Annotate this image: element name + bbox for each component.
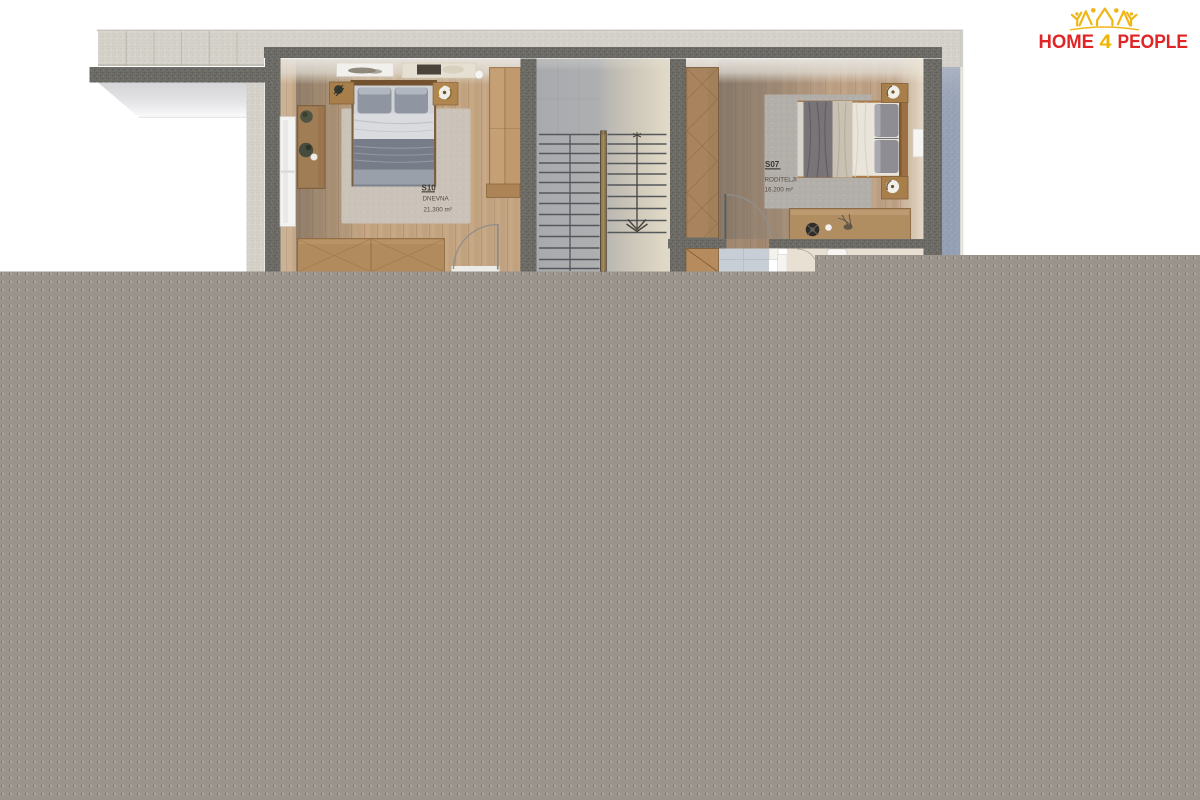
svg-text:16.200 m²: 16.200 m² xyxy=(765,187,793,194)
svg-text:S10: S10 xyxy=(422,184,437,193)
svg-text:S07: S07 xyxy=(765,160,780,169)
svg-text:PEOPLE: PEOPLE xyxy=(1118,31,1189,53)
svg-text:4: 4 xyxy=(1100,31,1112,53)
svg-text:HOME: HOME xyxy=(1039,31,1095,53)
svg-text:RODITELJI: RODITELJI xyxy=(765,177,797,184)
svg-text:DNEVNA: DNEVNA xyxy=(423,196,450,203)
svg-text:21.300 m²: 21.300 m² xyxy=(424,207,452,214)
